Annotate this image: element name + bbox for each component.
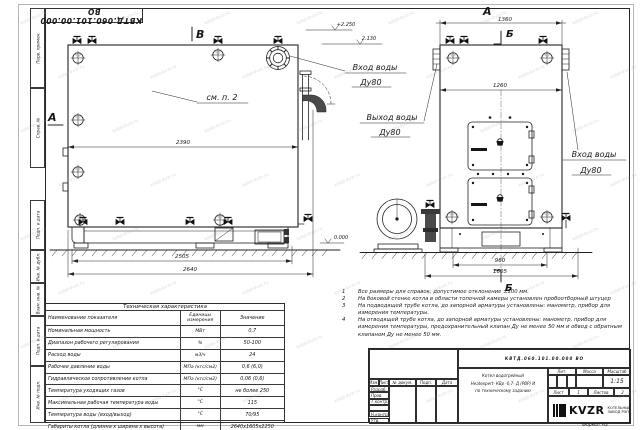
company-logo-cell: KVZR КОТЕЛЬНЫЙ ЗАВОД РЭП <box>548 396 631 424</box>
view-label-a-front: А <box>482 5 492 18</box>
svg-text:960: 960 <box>495 258 506 264</box>
row-name: Температура уходящих газов <box>46 385 180 396</box>
lit-label: Лит. <box>548 368 576 375</box>
sheet-number: 1 <box>569 388 588 396</box>
kvzr-logo-text: KVZR <box>569 404 604 417</box>
note-text: На боковой стенке котла в области топочн… <box>358 296 628 303</box>
note-number: 1 <box>340 289 358 296</box>
col-header-name: Наименование показателя <box>46 311 180 325</box>
svg-text:1360: 1360 <box>498 17 512 23</box>
row-value: 0,6 (6,0) <box>220 362 284 373</box>
row-units: МПа (кгс/см2) <box>180 374 220 385</box>
sheets-label: Листов <box>588 388 614 396</box>
note-text: На отводящей трубе котла, до запорной ар… <box>358 317 628 338</box>
outlet-pipe <box>300 71 335 140</box>
note-text: Все размеры для справок, допустимое откл… <box>358 289 628 296</box>
scale-label: Масштаб <box>603 368 631 375</box>
svg-text:1605: 1605 <box>493 269 507 275</box>
callout-inlet-right: Вход воды Ду80 <box>563 72 626 175</box>
col-header-value: Значение <box>220 311 284 325</box>
view-label-b: В <box>196 28 204 41</box>
drawing-sheet: Перв. примен. Справ. № Подп. и дата Инв.… <box>0 0 644 430</box>
svg-text:+2.250: +2.250 <box>337 22 356 28</box>
row-units: °С <box>180 397 220 408</box>
row-name: Гидравлическое сопротивление котла <box>46 374 180 385</box>
row-value: 24 <box>220 350 284 361</box>
row-units: % <box>180 338 220 349</box>
table-row: Максимальная рабочая температура воды °С… <box>46 396 284 408</box>
front-stub-right <box>562 49 569 70</box>
row-units: м3/ч <box>180 350 220 361</box>
sheet-label: Лист <box>548 388 569 396</box>
svg-text:Вход воды: Вход воды <box>353 63 398 72</box>
note-number: 3 <box>340 303 358 317</box>
inlet-flange <box>267 47 290 70</box>
note-item: 1 Все размеры для справок, допустимое от… <box>340 289 628 296</box>
row-units: МВт <box>180 326 220 337</box>
dim-side-total: 2640 <box>68 110 313 277</box>
svg-text:Б: Б <box>506 29 514 40</box>
lit-value <box>548 375 557 388</box>
doc-name-line3: по техническому заданию <box>475 387 531 395</box>
table-row: Гидравлическое сопротивление котла МПа (… <box>46 373 284 385</box>
table-row: Номинальная мощность МВт 0,7 <box>46 325 284 337</box>
dim-side-base: 2505 <box>72 246 292 264</box>
sig-header-ndocum: № докум. <box>389 379 416 386</box>
row-value: 70/95 <box>220 409 284 420</box>
row-name: Номинальная мощность <box>46 326 180 337</box>
svg-text:2505: 2505 <box>175 254 189 260</box>
svg-text:Ду80: Ду80 <box>359 78 381 87</box>
svg-text:Вход воды: Вход воды <box>572 150 617 159</box>
note-item: 2 На боковой стенке котла в области топо… <box>340 296 628 303</box>
svg-text:0.000: 0.000 <box>334 235 348 241</box>
mass-label: Масса <box>576 368 603 375</box>
row-value: 115 <box>220 397 284 408</box>
table-row: Расход воды м3/ч 24 <box>46 349 284 361</box>
col-header-units: Единицы измерения <box>180 311 220 325</box>
scale-value: 1:15 <box>603 375 631 388</box>
dim-front-inner: 1260 <box>440 83 562 268</box>
company-logo: KVZR КОТЕЛЬНЫЙ ЗАВОД РЭП <box>549 404 631 417</box>
lit-value <box>557 375 566 388</box>
table-row: Габариты котла (длинна х ширина х высота… <box>46 420 284 430</box>
sig-grid <box>416 386 436 424</box>
note-item: 3 На подводящей трубе котла, до запорной… <box>340 303 628 317</box>
sig-header-data: Дата <box>436 379 458 386</box>
row-units: МПа (кгс/см2) <box>180 362 220 373</box>
row-name: Температура воды (вход/выход) <box>46 409 180 420</box>
sig-header-izm: Изм. <box>369 379 379 386</box>
table-row: Температура воды (вход/выход) °С 70/95 <box>46 408 284 420</box>
svg-text:Выход воды: Выход воды <box>367 113 418 122</box>
dim-side-inner: 2390 <box>68 140 298 149</box>
view-label-a-side: А <box>47 111 57 124</box>
doc-name-line2: Heatexpert- КВр -0,7- Д (РВР) И <box>471 380 536 388</box>
sig-row-utv: Утв. <box>369 418 389 425</box>
note-number: 4 <box>340 317 358 338</box>
sig-grid <box>389 386 416 424</box>
elevation-marks: +2.250 2.130 0.000 <box>306 22 382 243</box>
row-units: °С <box>180 409 220 420</box>
title-block: Изм. Лист № докум. Подп. Дата Разраб. Пр… <box>368 348 630 423</box>
svg-text:2.130: 2.130 <box>362 36 376 42</box>
blower-fan <box>374 199 422 253</box>
side-base <box>72 227 289 248</box>
sig-header-podp: Подп. <box>416 379 436 386</box>
svg-text:Ду80: Ду80 <box>378 128 400 137</box>
sig-header-list: Лист <box>379 379 389 386</box>
lit-value <box>567 375 576 388</box>
dim-front-base: 960 <box>453 253 547 268</box>
note-number: 2 <box>340 296 358 303</box>
row-name: Максимальная рабочая температура воды <box>46 397 180 408</box>
row-units: °С <box>180 385 220 396</box>
air-duct <box>421 201 440 243</box>
doc-name-line1: Котел водогрейный <box>482 372 524 380</box>
row-value: 0,06 (0,6) <box>220 374 284 385</box>
notes-list: 1 Все размеры для справок, допустимое от… <box>340 289 628 339</box>
kvzr-logo-icon <box>553 404 566 417</box>
rev-area <box>369 349 458 379</box>
tech-table: Техническая характеристика Наименование … <box>45 303 285 423</box>
callout-outlet: Выход воды Ду80 <box>360 64 437 137</box>
row-units: мм <box>180 421 220 430</box>
svg-text:2390: 2390 <box>176 140 190 146</box>
mass-value <box>576 375 603 388</box>
table-row: Рабочее давление воды МПа (кгс/см2) 0,6 … <box>46 361 284 373</box>
front-view: 1360 А 1260 Б Б <box>360 5 592 294</box>
row-name: Рабочее давление воды <box>46 362 180 373</box>
note-text: На подводящей трубе котла, до запорной а… <box>358 303 628 317</box>
callout-see-note: см. п. 2 <box>152 91 248 103</box>
sig-grid <box>436 386 458 424</box>
section-mark-b-top: Б <box>494 29 514 44</box>
svg-text:Ду80: Ду80 <box>579 166 601 175</box>
table-row: Температура уходящих газов °С не более 2… <box>46 384 284 396</box>
tech-table-header: Наименование показателя Единицы измерени… <box>46 310 284 325</box>
row-value: не более 250 <box>220 385 284 396</box>
row-value: 2640х1605х2250 <box>220 421 284 430</box>
note-item: 4 На отводящей трубе котла, до запорной … <box>340 317 628 338</box>
row-value: 50-100 <box>220 338 284 349</box>
svg-text:см. п. 2: см. п. 2 <box>207 93 238 102</box>
svg-text:1260: 1260 <box>493 83 507 89</box>
row-value: 0,7 <box>220 326 284 337</box>
format-label: Формат А3 <box>560 423 630 428</box>
row-name: Габариты котла (длинна х ширина х высота… <box>46 421 180 430</box>
side-view: 2390 2505 2640 В А <box>47 27 340 277</box>
doc-number: КВТД.060.101.00.000 ВО <box>458 349 631 368</box>
doc-name: Котел водогрейный Heatexpert- КВр -0,7- … <box>458 368 548 424</box>
table-row: Диапазон рабочего регулирования % 50-100 <box>46 337 284 349</box>
row-name: Диапазон рабочего регулирования <box>46 338 180 349</box>
sheets-number: 2 <box>614 388 631 396</box>
callout-inlet-left: Вход воды Ду80 <box>290 56 406 87</box>
row-name: Расход воды <box>46 350 180 361</box>
kvzr-logo-caption: КОТЕЛЬНЫЙ ЗАВОД РЭП <box>607 406 631 414</box>
svg-text:2640: 2640 <box>183 267 197 273</box>
